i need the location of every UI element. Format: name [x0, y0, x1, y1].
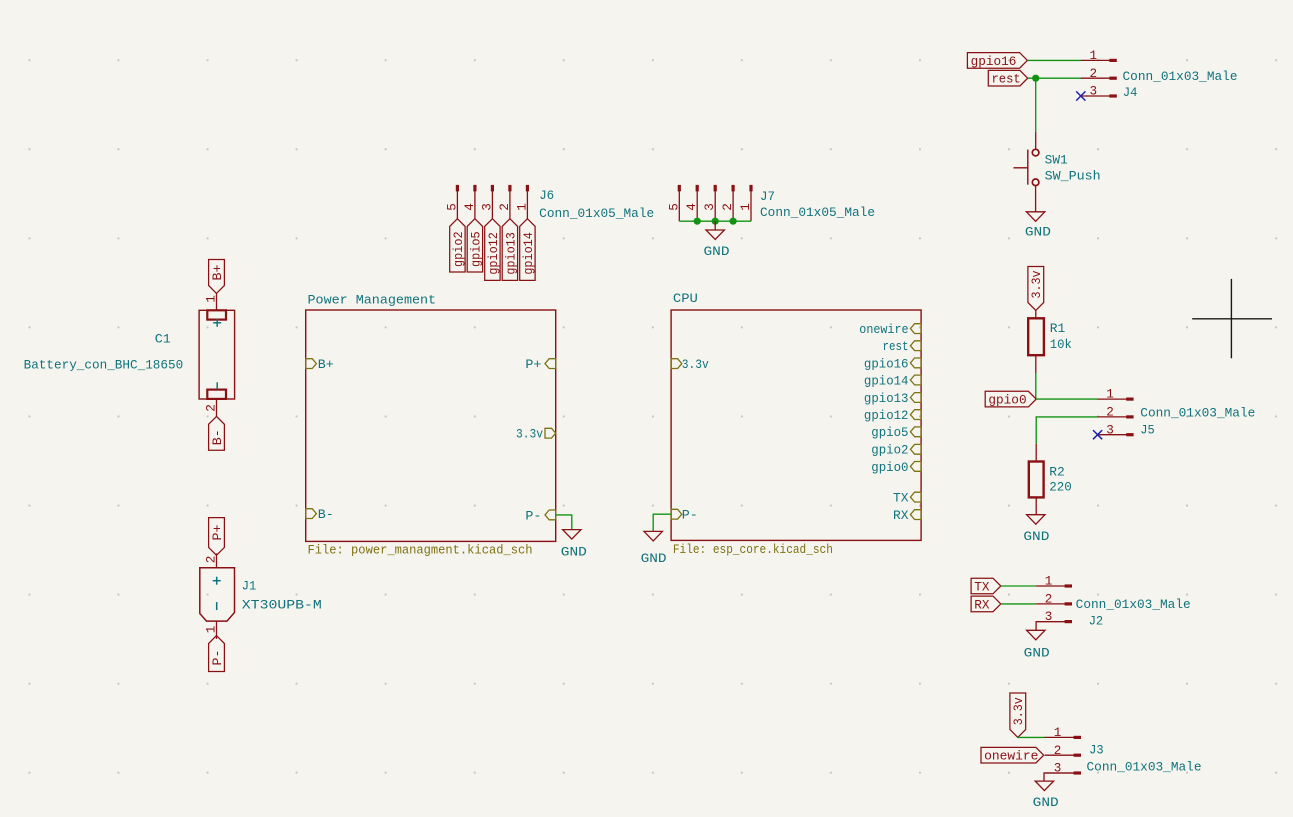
svg-text:1: 1: [1045, 574, 1053, 589]
svg-text:gpio0: gpio0: [871, 460, 908, 475]
svg-text:J7: J7: [760, 189, 775, 204]
svg-text:R2: R2: [1049, 464, 1065, 479]
svg-text:File: power_managment.kicad_sc: File: power_managment.kicad_sch: [308, 543, 533, 558]
svg-text:2: 2: [720, 203, 735, 211]
svg-text:Conn_01x03_Male: Conn_01x03_Male: [1076, 597, 1191, 612]
svg-text:File: esp_core.kicad_sch: File: esp_core.kicad_sch: [673, 542, 833, 557]
svg-text:Battery_con_BHC_18650: Battery_con_BHC_18650: [24, 357, 184, 372]
svg-text:SW1: SW1: [1045, 153, 1068, 168]
svg-text:3: 3: [479, 203, 494, 211]
svg-text:P-: P-: [210, 650, 225, 666]
svg-text:1: 1: [1090, 48, 1098, 63]
svg-text:gpio16: gpio16: [864, 356, 909, 371]
svg-text:GND: GND: [1025, 225, 1051, 240]
svg-text:gpio2: gpio2: [871, 443, 908, 458]
svg-text:R1: R1: [1050, 321, 1066, 336]
svg-text:2: 2: [1045, 592, 1053, 607]
svg-text:RX: RX: [974, 597, 990, 612]
svg-text:rest: rest: [992, 72, 1021, 87]
svg-text:B-: B-: [318, 507, 334, 522]
svg-text:3.3v: 3.3v: [682, 357, 709, 372]
svg-text:gpio16: gpio16: [971, 54, 1017, 69]
svg-text:gpio13: gpio13: [503, 232, 518, 275]
svg-text:SW_Push: SW_Push: [1045, 168, 1101, 183]
svg-text:GND: GND: [704, 244, 730, 259]
svg-text:10k: 10k: [1050, 337, 1072, 352]
svg-text:3.3v: 3.3v: [1011, 697, 1026, 725]
svg-text:5: 5: [666, 203, 681, 211]
svg-text:2: 2: [204, 556, 219, 564]
svg-text:4: 4: [684, 203, 699, 211]
svg-text:220: 220: [1049, 480, 1072, 495]
svg-text:B+: B+: [210, 265, 225, 281]
svg-text:J2: J2: [1089, 614, 1104, 629]
svg-text:P-: P-: [525, 508, 541, 523]
svg-text:5: 5: [444, 203, 459, 211]
svg-text:GND: GND: [1033, 795, 1059, 810]
svg-text:GND: GND: [1023, 529, 1049, 544]
svg-text:Conn_01x03_Male: Conn_01x03_Male: [1123, 69, 1238, 84]
svg-text:gpio5: gpio5: [871, 425, 908, 440]
svg-text:2: 2: [204, 404, 219, 412]
svg-text:GND: GND: [561, 545, 587, 560]
svg-text:J6: J6: [539, 188, 554, 203]
svg-text:2: 2: [1054, 743, 1062, 758]
svg-text:1: 1: [204, 626, 219, 634]
svg-text:3.3v: 3.3v: [516, 427, 543, 442]
svg-text:GND: GND: [1024, 646, 1050, 661]
svg-text:3: 3: [1090, 84, 1098, 99]
svg-text:gpio13: gpio13: [864, 391, 909, 406]
svg-text:C1: C1: [155, 331, 171, 346]
svg-text:B-: B-: [210, 429, 225, 445]
svg-text:P-: P-: [682, 508, 698, 523]
svg-text:Conn_01x05_Male: Conn_01x05_Male: [539, 206, 654, 221]
svg-text:1: 1: [1054, 725, 1062, 740]
svg-text:gpio12: gpio12: [486, 232, 501, 275]
svg-text:2: 2: [1090, 66, 1098, 81]
svg-text:gpio5: gpio5: [468, 231, 483, 267]
svg-text:3: 3: [1106, 422, 1114, 437]
svg-text:TX: TX: [974, 579, 990, 594]
svg-text:J5: J5: [1140, 423, 1155, 438]
svg-text:CPU: CPU: [673, 291, 698, 306]
svg-text:Power Management: Power Management: [308, 293, 437, 308]
svg-text:1: 1: [738, 203, 753, 211]
svg-text:1: 1: [1106, 387, 1114, 402]
svg-text:Conn_01x03_Male: Conn_01x03_Male: [1087, 760, 1202, 775]
svg-text:B+: B+: [318, 357, 334, 372]
svg-text:Conn_01x03_Male: Conn_01x03_Male: [1140, 405, 1255, 420]
svg-text:onewire: onewire: [859, 322, 908, 337]
svg-text:rest: rest: [883, 339, 909, 354]
svg-text:Conn_01x05_Male: Conn_01x05_Male: [760, 205, 875, 220]
svg-text:J3: J3: [1089, 743, 1104, 758]
svg-text:gpio14: gpio14: [864, 373, 909, 388]
svg-text:onewire: onewire: [984, 749, 1038, 764]
svg-text:1: 1: [514, 203, 529, 211]
svg-text:4: 4: [462, 203, 477, 211]
svg-text:J1: J1: [242, 578, 256, 593]
svg-text:XT30UPB-M: XT30UPB-M: [242, 598, 322, 613]
svg-text:3: 3: [702, 203, 717, 211]
svg-text:gpio14: gpio14: [521, 232, 536, 275]
svg-text:gpio0: gpio0: [988, 393, 1026, 408]
svg-text:P+: P+: [210, 525, 225, 541]
svg-text:P+: P+: [525, 357, 541, 372]
svg-text:gpio2: gpio2: [451, 231, 466, 267]
svg-text:gpio12: gpio12: [864, 408, 909, 423]
svg-text:2: 2: [1106, 405, 1114, 420]
svg-text:GND: GND: [641, 551, 667, 566]
svg-text:3.3v: 3.3v: [1029, 270, 1044, 298]
svg-text:TX: TX: [893, 491, 909, 506]
svg-text:J4: J4: [1123, 85, 1138, 100]
svg-text:2: 2: [497, 203, 512, 211]
svg-text:RX: RX: [893, 508, 909, 523]
svg-text:1: 1: [204, 295, 219, 303]
